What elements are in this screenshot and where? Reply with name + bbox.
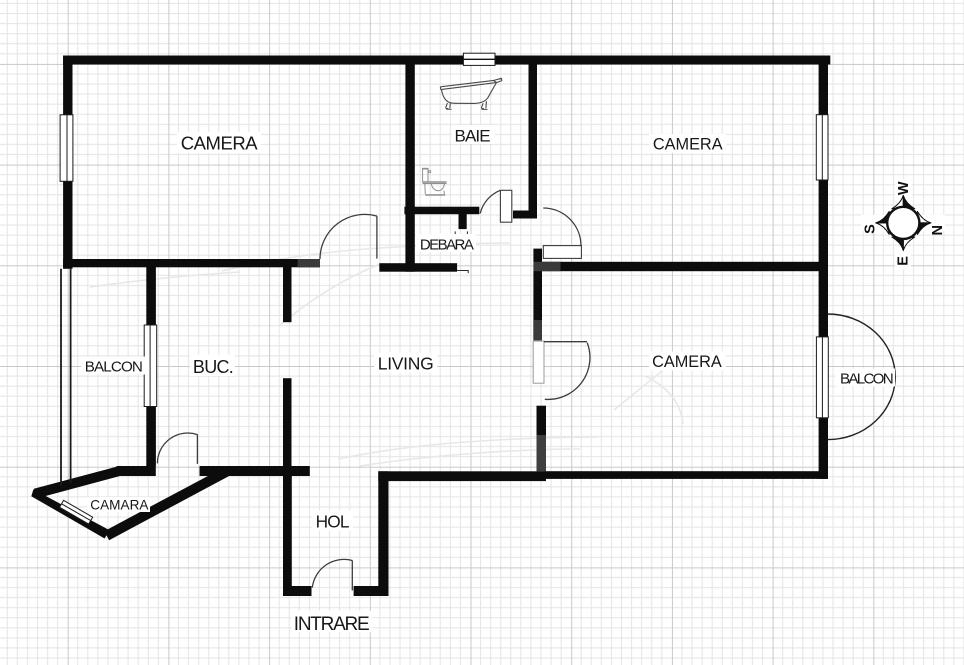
svg-text:W: W [896,181,912,195]
svg-text:BALCON: BALCON [85,359,142,376]
svg-text:BALCON: BALCON [840,371,893,388]
svg-text:BAIE: BAIE [455,126,491,145]
svg-text:CAMERA: CAMERA [181,133,259,154]
svg-text:N: N [930,225,946,235]
svg-text:LIVING: LIVING [378,354,434,374]
svg-text:S: S [863,224,879,234]
svg-text:INTRARE: INTRARE [294,614,369,635]
svg-text:BUC.: BUC. [193,357,233,377]
svg-text:CAMARA: CAMARA [90,497,149,512]
svg-text:HOL: HOL [316,511,350,531]
svg-text:DEBARA: DEBARA [420,236,474,253]
svg-text:E: E [896,256,912,266]
svg-text:CAMERA: CAMERA [652,353,722,371]
svg-text:CAMERA: CAMERA [653,136,723,154]
